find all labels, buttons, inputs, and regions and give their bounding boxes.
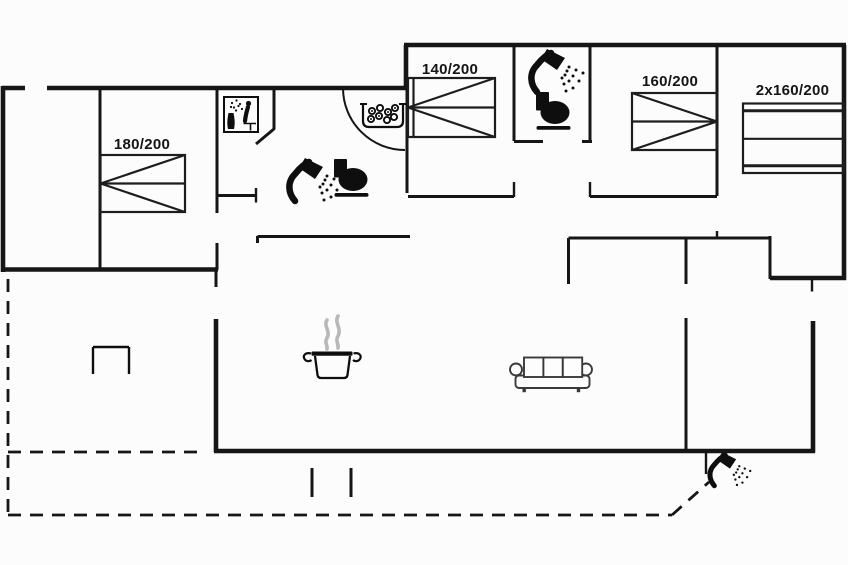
bunk-bed-2x160x200 [743, 104, 844, 174]
bed-size-label: 160/200 [623, 73, 717, 90]
floor-plan-drawing [0, 0, 848, 565]
whirlpool-icon [360, 104, 406, 127]
toilet-icon [536, 92, 571, 130]
shower-icon [531, 49, 584, 93]
person-body [245, 107, 248, 121]
bed-180x200 [101, 155, 186, 212]
cooking-pot-icon [304, 316, 361, 378]
toilet-icon [334, 159, 369, 197]
steam-icon [326, 320, 328, 349]
sauna-icon [224, 97, 258, 132]
table-icon [93, 347, 129, 374]
bucket-shape [227, 113, 234, 129]
steam-icon [337, 316, 339, 348]
outdoor-shower-icon [710, 452, 751, 486]
bed-size-label: 180/200 [95, 136, 189, 153]
bed-size-label: 2x160/200 [735, 82, 848, 99]
exterior-walls [2, 45, 846, 453]
pot-handle-left [304, 353, 312, 361]
bed-160x200 [632, 93, 717, 150]
splash-dots [230, 99, 243, 111]
bench-lines [244, 124, 257, 131]
bed-size-label: 140/200 [403, 61, 497, 78]
floor-plan: 180/200 140/200 160/200 2x160/200 [0, 0, 848, 565]
sofa-icon [510, 358, 592, 393]
bubbles [368, 105, 398, 123]
bed-140x200 [408, 78, 495, 137]
terrace-door-posts [312, 468, 351, 497]
terrace-boundary [8, 279, 709, 516]
pot-handle-right [353, 353, 361, 361]
